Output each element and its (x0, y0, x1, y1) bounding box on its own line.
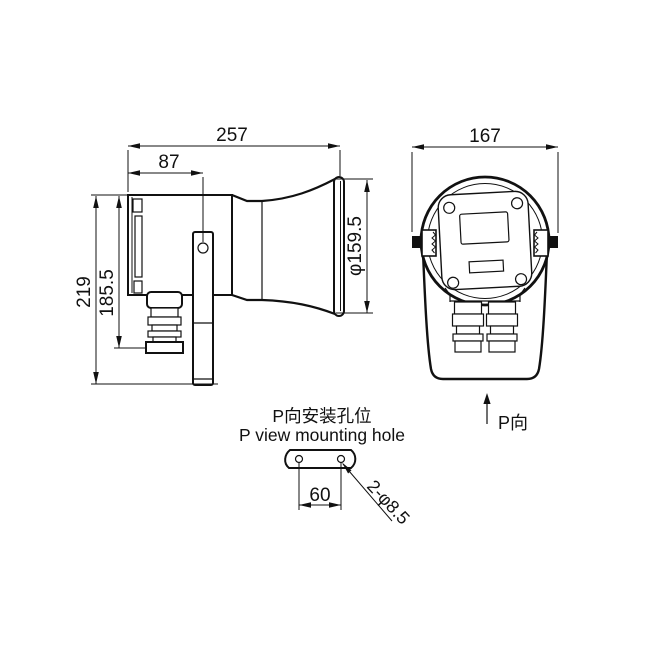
gland-ring (151, 308, 178, 317)
detail-dimensions: 60 2-φ8.5 (299, 463, 414, 529)
box-slot-top (133, 199, 142, 212)
side-view: 257 87 219 185.5 φ159.5 (74, 125, 373, 385)
p-direction-indicator: P向 (483, 393, 528, 433)
horn-bell-rim (334, 177, 344, 316)
gland-cap (147, 292, 182, 308)
gland-ring (455, 341, 481, 352)
gland-ring (453, 314, 484, 326)
gland-ring (152, 325, 177, 331)
dim-hole-spec: 2-φ8.5 (363, 476, 414, 528)
dim-bracket-offset: 87 (158, 152, 179, 173)
clamp-bolt-left (413, 237, 421, 248)
gland-ring (489, 341, 515, 352)
small-plate (469, 260, 504, 273)
gland-ring (455, 302, 482, 314)
bracket-hole (198, 243, 208, 253)
drawing-svg: 257 87 219 185.5 φ159.5 (0, 0, 660, 660)
technical-drawing: 257 87 219 185.5 φ159.5 (0, 0, 660, 660)
dim-overall-length: 257 (216, 125, 248, 146)
horn-top-profile (232, 179, 335, 201)
plate-screw (443, 202, 455, 214)
cable-gland-right (487, 302, 518, 352)
box-slot-middle (135, 216, 142, 277)
mounting-hole-right (338, 456, 345, 463)
dim-overall-height: 219 (74, 276, 95, 308)
label-plate (460, 212, 510, 244)
detail-title-zh: P向安装孔位 (272, 406, 371, 426)
gland-ring (457, 326, 480, 334)
cable-gland-side (146, 292, 183, 353)
detail-title-en: P view mounting hole (239, 425, 405, 445)
mounting-detail: P向安装孔位 P view mounting hole 60 2-φ8.5 (239, 406, 414, 528)
p-view-label: P向 (498, 413, 528, 433)
dim-horn-diameter: φ159.5 (345, 216, 366, 276)
plate-screw (515, 273, 527, 285)
mounting-bracket-side (193, 232, 213, 385)
gland-ring (148, 317, 181, 325)
dim-body-height: 185.5 (97, 269, 118, 317)
dim-hole-spacing: 60 (309, 485, 330, 506)
gland-ring (148, 331, 181, 337)
junction-box (128, 195, 232, 295)
clamp-bolt-right (550, 237, 558, 248)
plate-screw (511, 197, 523, 209)
speaker-front-plate (438, 191, 533, 291)
gland-ring (453, 334, 483, 341)
front-view: P向 167 (412, 126, 558, 433)
gland-ring (487, 314, 518, 326)
gland-base (146, 342, 183, 353)
horn-bottom-profile (232, 295, 335, 314)
p-arrowhead (483, 393, 490, 404)
dim-overall-width: 167 (469, 126, 501, 147)
gland-ring (489, 302, 516, 314)
cable-gland-left (453, 302, 484, 352)
mounting-hole-left (296, 456, 303, 463)
plate-screw (447, 277, 459, 289)
gland-ring (487, 334, 517, 341)
box-slot-bottom (134, 281, 142, 293)
gland-ring (491, 326, 514, 334)
